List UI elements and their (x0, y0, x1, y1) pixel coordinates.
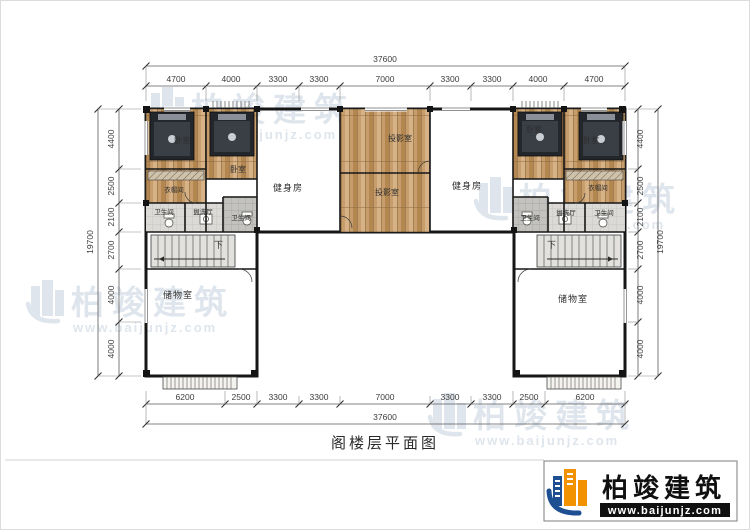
dim-value: 4000 (106, 285, 116, 304)
dim-right: 4400 2500 2100 2700 4000 4000 19700 (628, 106, 665, 380)
label-gym: 健身房 (273, 182, 303, 193)
dim-value: 3300 (269, 74, 288, 84)
label-bedroom: 卧室 (174, 135, 190, 145)
floor-plan-page: 柏竣建筑 www.baijunjz.com 柏竣建筑 www.baijunjz.… (0, 0, 750, 530)
stairs-down-label: 下 (214, 240, 224, 250)
dim-value: 4000 (635, 339, 645, 358)
room-projection-bottom (340, 173, 430, 232)
label-cloakroom: 衣帽间 (164, 185, 184, 194)
stairs-down-label: 下 (547, 240, 557, 250)
dim-bottom-segment-labels: 6200 2500 3300 3300 7000 3300 3300 2500 … (176, 392, 595, 402)
stairs-left: 下 (151, 235, 235, 267)
bed-right-inner (518, 112, 562, 156)
dim-value: 2500 (520, 392, 539, 402)
dim-top-segment-labels: 4700 4000 3300 3300 7000 3300 3300 4000 … (167, 74, 604, 84)
label-bedroom: 卧室 (526, 124, 542, 134)
dim-value: 4700 (167, 74, 186, 84)
dim-value: 4400 (106, 129, 116, 148)
dim-value: 3300 (483, 74, 502, 84)
dim-value: 6200 (176, 392, 195, 402)
dim-value: 2500 (635, 176, 645, 195)
dim-value: 2500 (106, 176, 116, 195)
brand-name: 柏竣建筑 (602, 473, 726, 503)
drawing-title: 阁楼层平面图 (331, 435, 439, 452)
label-storage: 储物室 (558, 293, 588, 304)
label-storage: 储物室 (163, 289, 193, 300)
watermark-url: www.baijunjz.com (474, 433, 619, 448)
dim-value: 4000 (635, 285, 645, 304)
label-washroom: 盥洗厅 (556, 208, 576, 217)
dim-value: 4000 (529, 74, 548, 84)
label-bathroom: 卫生间 (154, 207, 174, 216)
dim-bottom-total: 37600 (373, 412, 397, 422)
dim-value: 2700 (106, 240, 116, 259)
dim-value: 2700 (635, 240, 645, 259)
dim-top-total: 37600 (373, 54, 397, 64)
brand-logo: 柏竣建筑 www.baijunjz.com (544, 461, 737, 521)
dim-value: 7000 (376, 74, 395, 84)
dim-value: 3300 (483, 392, 502, 402)
label-projection: 投影室 (388, 133, 412, 143)
stairs-right: 下 (537, 235, 621, 267)
dim-value: 6200 (576, 392, 595, 402)
label-bathroom: 卫生间 (231, 213, 251, 222)
label-cloakroom: 衣帽间 (588, 183, 608, 192)
label-bathroom: 卫生间 (594, 208, 614, 217)
dim-left: 19700 4400 2500 2100 2700 4000 4000 (85, 106, 141, 380)
dim-value: 2100 (106, 207, 116, 226)
dim-right-total: 19700 (655, 230, 665, 254)
dim-value: 3300 (310, 392, 329, 402)
label-bathroom: 卫生间 (520, 213, 540, 222)
brand-url: www.baijunjz.com (607, 505, 722, 517)
dim-value: 7000 (376, 392, 395, 402)
wardrobe-left (148, 171, 204, 180)
dim-value: 4700 (585, 74, 604, 84)
dim-value: 3300 (269, 392, 288, 402)
floor-plan-svg: 柏竣建筑 www.baijunjz.com 柏竣建筑 www.baijunjz.… (1, 1, 749, 529)
dim-left-total: 19700 (85, 230, 95, 254)
dim-value: 4400 (635, 129, 645, 148)
bed-left-inner (210, 112, 254, 156)
label-gym: 健身房 (452, 180, 482, 191)
wardrobe-right (566, 171, 623, 180)
label-bedroom: 卧室 (230, 164, 246, 174)
dim-value: 4000 (222, 74, 241, 84)
watermark-name: 柏竣建筑 (473, 397, 637, 434)
brand-watermark-icon (28, 280, 64, 321)
watermark-name: 柏竣建筑 (71, 284, 235, 321)
label-projection: 投影室 (375, 187, 399, 197)
dim-value: 2500 (232, 392, 251, 402)
dim-value: 2100 (635, 207, 645, 226)
dim-value: 3300 (441, 74, 460, 84)
dim-value: 3300 (441, 392, 460, 402)
dim-value: 3300 (310, 74, 329, 84)
exterior-steps (163, 377, 621, 389)
label-bedroom: 卧室 (583, 135, 599, 145)
dim-value: 4000 (106, 339, 116, 358)
label-washroom: 盥洗厅 (193, 207, 213, 216)
room-projection-top (340, 109, 430, 173)
